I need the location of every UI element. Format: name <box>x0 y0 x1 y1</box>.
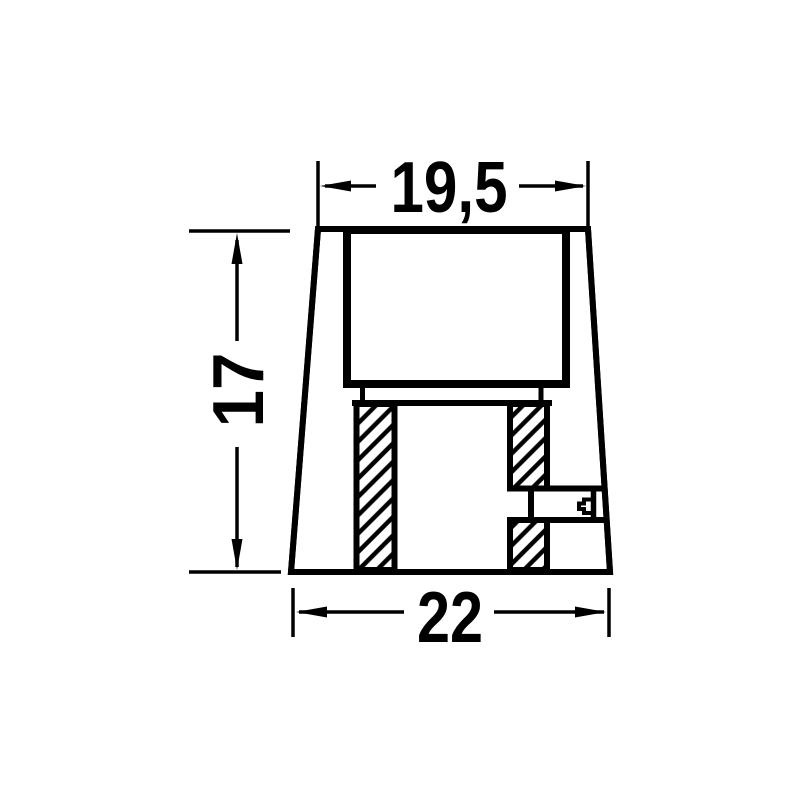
dimension-bottom-width: 22 <box>293 578 609 658</box>
shaft-cavity <box>347 230 566 384</box>
arrowhead-down <box>232 539 243 570</box>
technical-drawing: 19,5 17 22 <box>0 0 800 800</box>
bushing-wall-right-lower-hatch <box>510 520 547 570</box>
arrowhead-up <box>232 233 243 264</box>
knob-body <box>291 229 610 572</box>
dimension-label-height: 17 <box>199 353 279 428</box>
drawing-page: 19,5 17 22 <box>0 0 800 800</box>
dimension-label-bottom-width: 22 <box>417 578 483 658</box>
arrowhead-right <box>575 607 606 618</box>
bushing-wall-left-hatch <box>357 404 395 570</box>
arrowhead-right <box>555 181 586 192</box>
dimension-label-top-width: 19,5 <box>391 148 508 228</box>
dimension-top-width: 19,5 <box>318 148 588 228</box>
arrowhead-left <box>320 181 351 192</box>
dimension-height: 17 <box>189 231 290 572</box>
bushing-wall-right-upper-hatch <box>510 404 547 489</box>
arrowhead-left <box>296 607 327 618</box>
